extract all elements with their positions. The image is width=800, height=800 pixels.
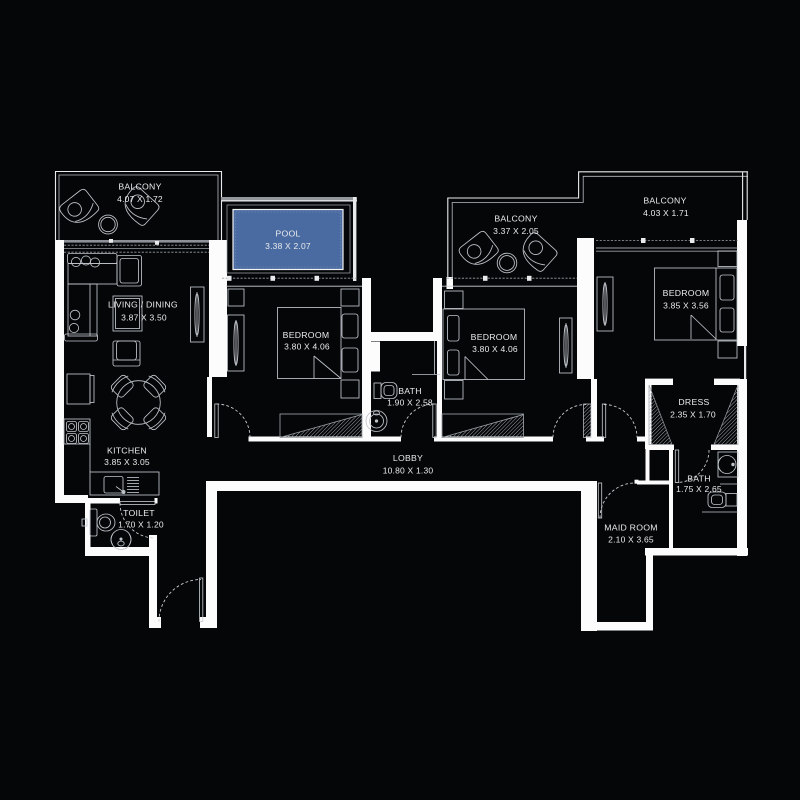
svg-text:2.10 X 3.65: 2.10 X 3.65 — [608, 535, 654, 545]
svg-text:BALCONY: BALCONY — [643, 196, 686, 206]
svg-text:1.70 X 1.20: 1.70 X 1.20 — [118, 520, 164, 530]
svg-text:BEDROOM: BEDROOM — [663, 288, 710, 298]
svg-text:BATH: BATH — [398, 386, 422, 396]
svg-text:KITCHEN: KITCHEN — [107, 446, 147, 456]
svg-text:1.90 X 2.58: 1.90 X 2.58 — [387, 398, 433, 408]
svg-text:2.35 X 1.70: 2.35 X 1.70 — [670, 410, 716, 420]
svg-text:1.75 X 2.65: 1.75 X 2.65 — [676, 484, 722, 494]
svg-text:3.38 X 2.07: 3.38 X 2.07 — [265, 241, 311, 251]
svg-text:3.80 X 4.06: 3.80 X 4.06 — [284, 342, 330, 352]
svg-text:3.87 X 3.50: 3.87 X 3.50 — [121, 313, 167, 323]
svg-text:DRESS: DRESS — [678, 397, 709, 407]
svg-text:BEDROOM: BEDROOM — [471, 332, 518, 342]
svg-text:3.80 X 4.06: 3.80 X 4.06 — [472, 344, 518, 354]
svg-text:BATH: BATH — [687, 474, 711, 484]
svg-text:LOBBY: LOBBY — [393, 453, 423, 463]
svg-text:POOL: POOL — [275, 229, 300, 239]
svg-text:3.85 X 3.05: 3.85 X 3.05 — [104, 457, 150, 467]
svg-text:MAID ROOM: MAID ROOM — [604, 523, 657, 533]
svg-text:3.85 X 3.56: 3.85 X 3.56 — [663, 301, 709, 311]
svg-text:BALCONY: BALCONY — [494, 214, 537, 224]
svg-text:BALCONY: BALCONY — [118, 182, 161, 192]
svg-text:3.37 X 2.05: 3.37 X 2.05 — [493, 226, 539, 236]
svg-text:4.07 X 1.72: 4.07 X 1.72 — [117, 194, 163, 204]
svg-text:10.80 X 1.30: 10.80 X 1.30 — [383, 466, 434, 476]
svg-text:LIVING / DINING: LIVING / DINING — [108, 300, 178, 310]
svg-text:BEDROOM: BEDROOM — [283, 330, 330, 340]
svg-text:4.03 X 1.71: 4.03 X 1.71 — [643, 208, 689, 218]
svg-text:TOILET: TOILET — [123, 508, 155, 518]
